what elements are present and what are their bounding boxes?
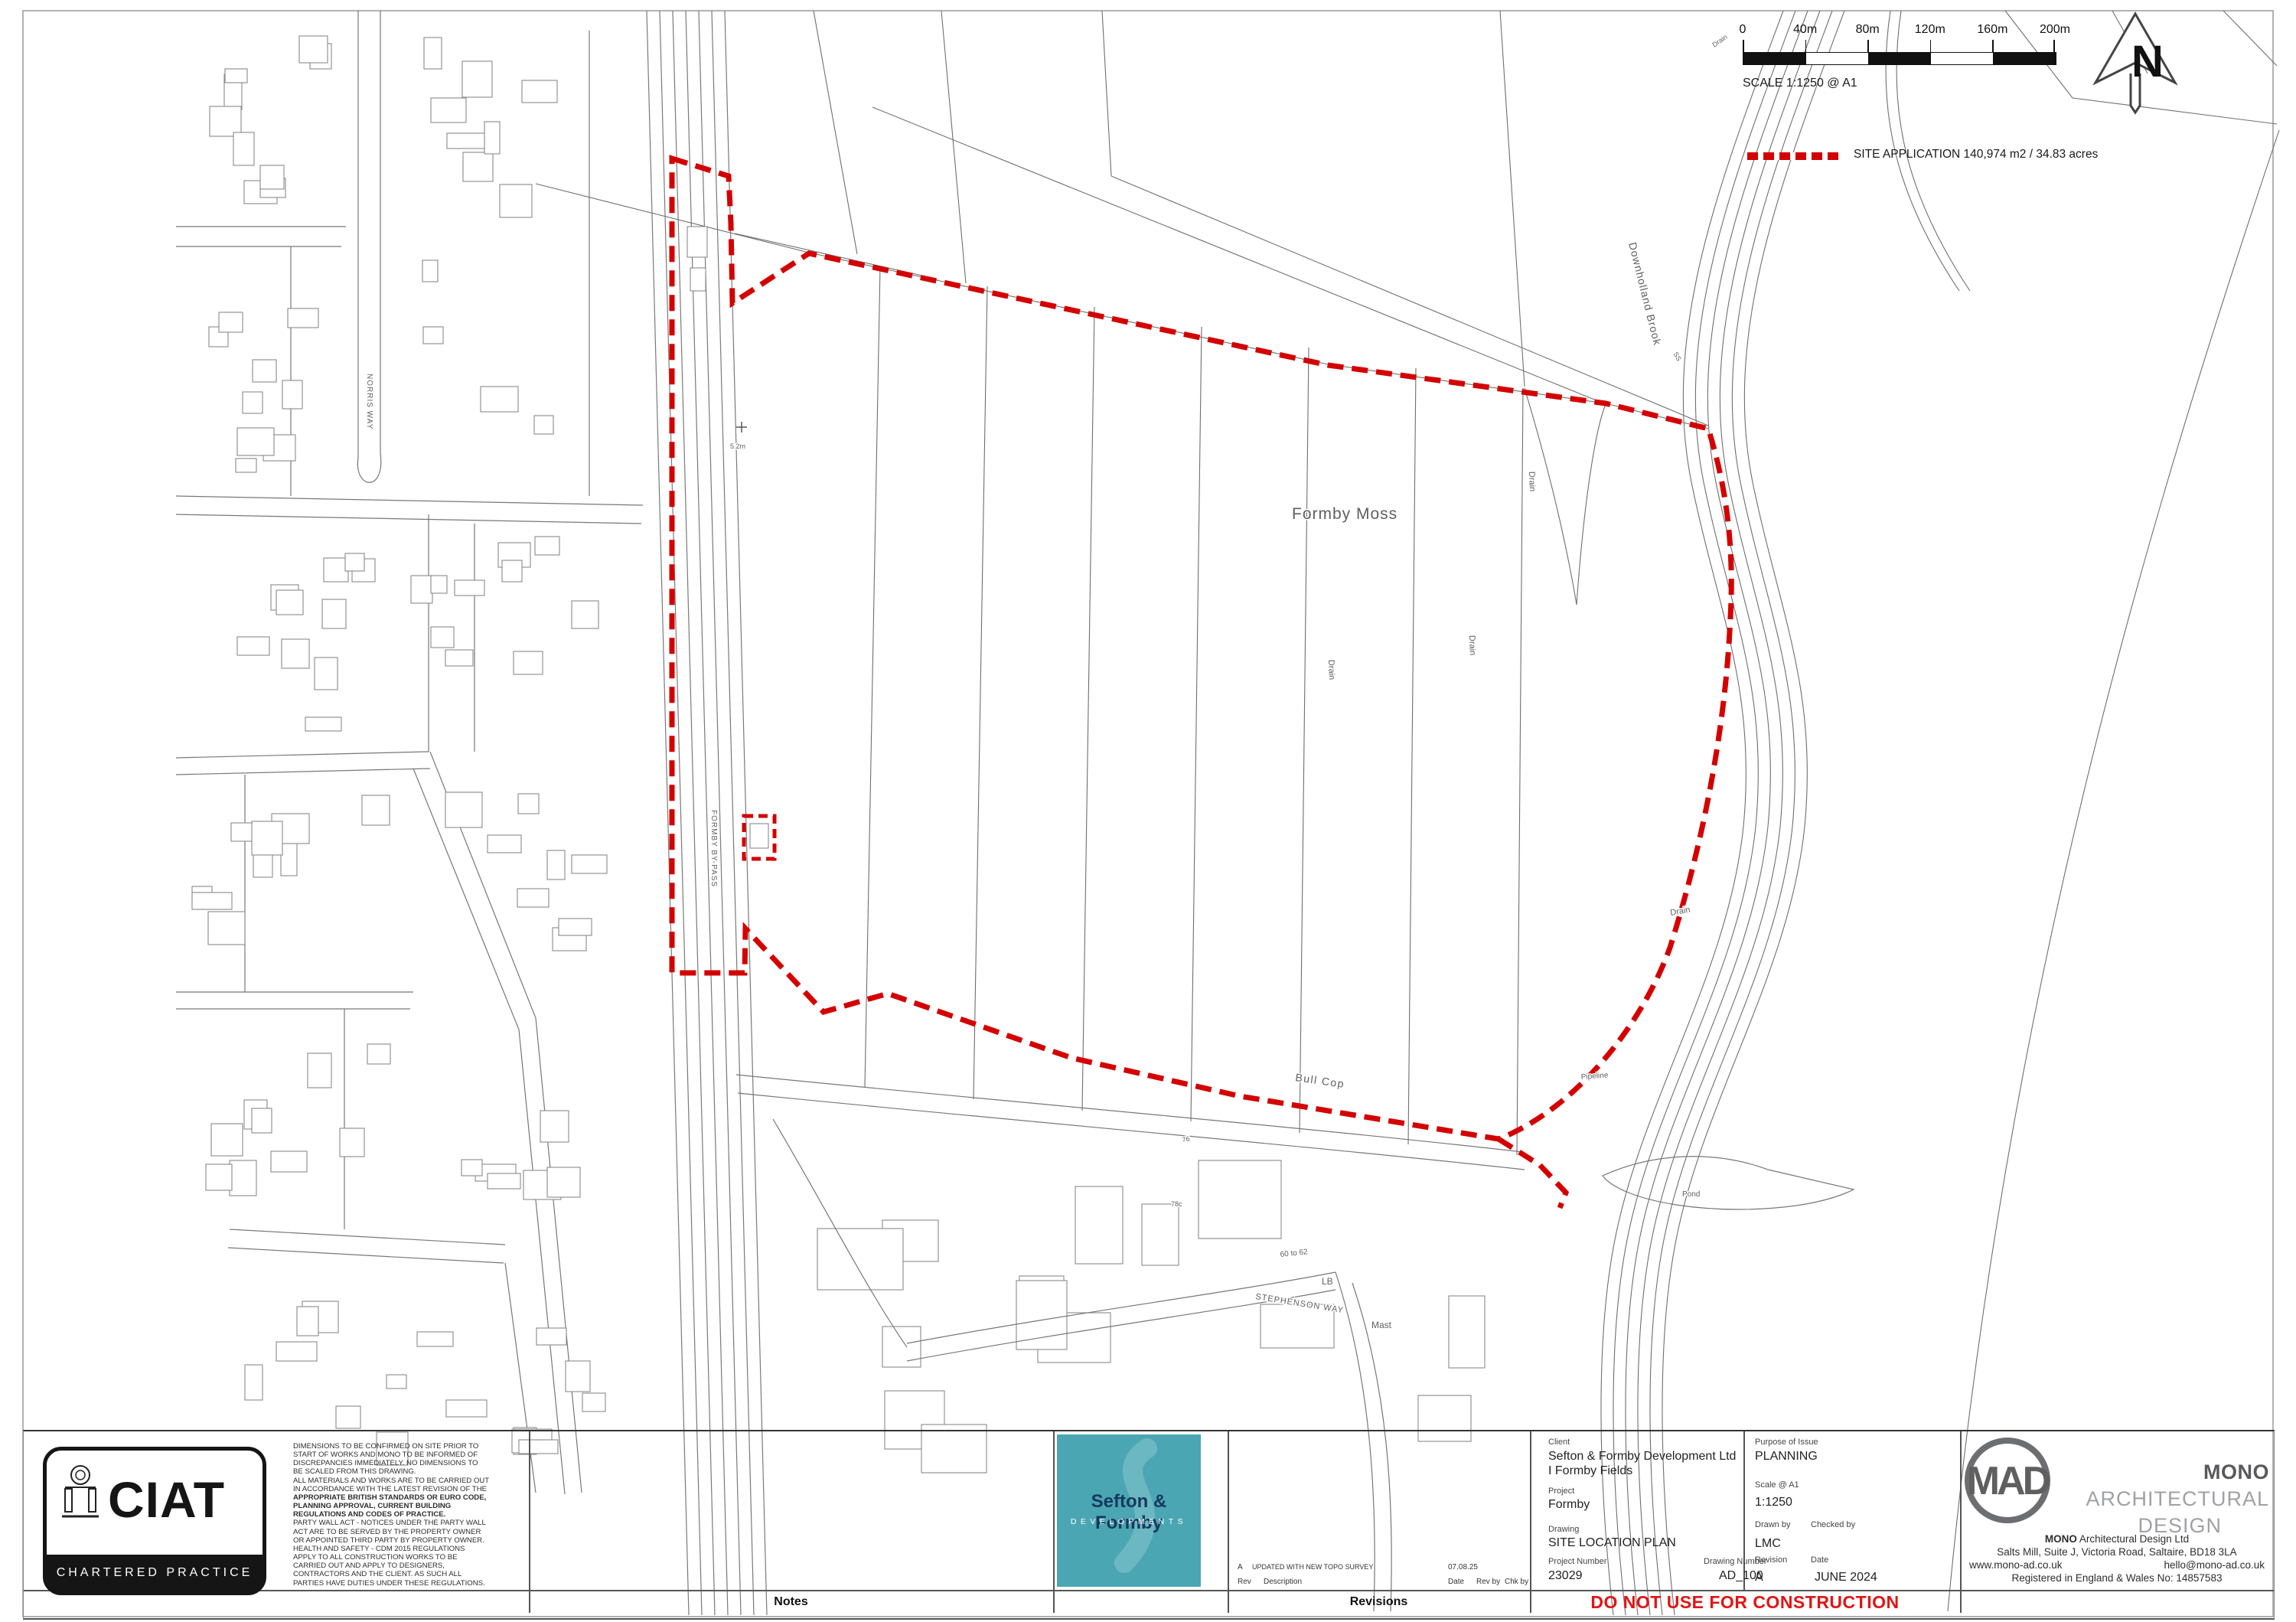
notes-bar-label: Notes bbox=[529, 1591, 1053, 1614]
map-label-downholland-brook: Downholland Brook bbox=[1626, 241, 1664, 347]
building-outline bbox=[276, 590, 303, 615]
date-label: Date bbox=[1811, 1555, 1828, 1565]
note-line: OR APPOINTED THIRD PARTY BY PROPERTY OWN… bbox=[293, 1536, 523, 1545]
building-outline bbox=[297, 1307, 318, 1336]
mad-logo-icon: MAD bbox=[1963, 1436, 2052, 1525]
revision-header-description: Description bbox=[1264, 1578, 1302, 1586]
mono-registration: Registered in England & Wales No: 148575… bbox=[1963, 1571, 2271, 1584]
drawing-label: Drawing bbox=[1548, 1525, 1579, 1534]
revision-header-chk-by: Chk by bbox=[1505, 1578, 1528, 1586]
building-outline bbox=[236, 459, 256, 472]
building-outline bbox=[455, 580, 484, 596]
map-label-drain-1: Drain bbox=[1527, 472, 1537, 492]
building-outline bbox=[192, 893, 232, 909]
sefton-logo-name: Sefton & Formby bbox=[1057, 1491, 1201, 1534]
building-outline bbox=[566, 1361, 590, 1392]
note-line: START OF WORKS AND MONO TO BE INFORMED O… bbox=[293, 1451, 523, 1459]
scale-tick-label: 160m bbox=[1977, 23, 2007, 37]
building-outline bbox=[340, 1128, 364, 1157]
building-outline bbox=[243, 392, 263, 413]
scale-caption: SCALE 1:1250 @ A1 bbox=[1743, 77, 1857, 90]
map-label-norris-way: NORRIS WAY bbox=[365, 374, 373, 429]
building-outline bbox=[882, 1327, 921, 1367]
map-label-76: 76 bbox=[1182, 1135, 1190, 1144]
building-outline bbox=[1075, 1186, 1123, 1264]
map-label-drain-3: Drain bbox=[1467, 635, 1477, 656]
building-outline bbox=[210, 106, 241, 136]
building-outline bbox=[547, 1167, 580, 1197]
scale-value: 1:1250 bbox=[1755, 1496, 1792, 1509]
note-line: REGULATIONS AND CODES OF PRACTICE. bbox=[293, 1510, 523, 1519]
building-outline bbox=[281, 844, 297, 876]
revision-label: Revision bbox=[1755, 1555, 1787, 1565]
revision-value: A bbox=[1755, 1571, 1763, 1584]
note-line: CARRIED OUT AND APPLY TO DESIGNERS, bbox=[293, 1562, 523, 1570]
building-outline bbox=[245, 1365, 263, 1400]
date-value: JUNE 2024 bbox=[1815, 1571, 1877, 1584]
client-label: Client bbox=[1548, 1438, 1570, 1447]
note-line: APPLY TO ALL CONSTRUCTION WORKS TO BE bbox=[293, 1553, 523, 1562]
building-outline bbox=[252, 821, 282, 855]
note-line: ACT ARE TO BE SERVED BY THE PROPERTY OWN… bbox=[293, 1528, 523, 1536]
building-outline bbox=[417, 1332, 453, 1346]
building-outline bbox=[271, 1151, 307, 1172]
west-streets bbox=[176, 11, 643, 1494]
building-outline bbox=[582, 1393, 605, 1411]
drawing-info-panel: Client Sefton & Formby Development Ltd I… bbox=[1530, 1431, 1960, 1590]
note-line: APPROPRIATE BRITISH STANDARDS OR EURO CO… bbox=[293, 1493, 523, 1502]
note-line: IN ACCORDANCE WITH THE LATEST REVISION O… bbox=[293, 1485, 523, 1493]
note-line: PLANNING APPROVAL, CURRENT BUILDING bbox=[293, 1502, 523, 1510]
benchmark-mark bbox=[736, 422, 747, 432]
map-label-benchmark: 5.2m bbox=[730, 442, 745, 450]
building-outline bbox=[488, 835, 521, 853]
building-outline bbox=[559, 919, 592, 935]
mono-brand-light1: ARCHITECTURAL bbox=[2086, 1487, 2269, 1510]
building-outline bbox=[517, 889, 549, 907]
building-outline bbox=[547, 850, 565, 880]
building-outline bbox=[253, 360, 276, 382]
scale-label: Scale @ A1 bbox=[1755, 1480, 1799, 1490]
building-outline bbox=[572, 855, 607, 873]
building-outline bbox=[211, 1124, 243, 1156]
map-label-78c: 78c bbox=[1171, 1200, 1182, 1208]
building-outline bbox=[534, 416, 553, 434]
building-outline bbox=[502, 560, 522, 582]
site-plan-map: N Formby Moss Bull Cop Downholland Brook… bbox=[0, 0, 2296, 1622]
drawing-value: SITE LOCATION PLAN bbox=[1548, 1536, 1676, 1550]
building-outline bbox=[225, 69, 247, 83]
map-label-mast: Mast bbox=[1371, 1320, 1392, 1330]
north-arrow-icon: N bbox=[2095, 14, 2175, 113]
project-number-value: 23029 bbox=[1548, 1569, 1583, 1583]
building-outline bbox=[237, 428, 274, 455]
scale-bar-segments bbox=[1743, 52, 2056, 65]
building-outline bbox=[206, 1164, 232, 1190]
building-outline bbox=[336, 1406, 360, 1428]
building-outline bbox=[422, 260, 438, 282]
building-outline bbox=[282, 380, 302, 409]
mono-company-rest: Architectural Design Ltd bbox=[2077, 1533, 2189, 1545]
north-label: N bbox=[2131, 37, 2164, 86]
map-label-60-to-62: 60 to 62 bbox=[1280, 1248, 1309, 1259]
building-outline bbox=[446, 1400, 487, 1417]
building-outline bbox=[282, 639, 309, 668]
purpose-value: PLANNING bbox=[1755, 1450, 1818, 1464]
map-label-drain-2: Drain bbox=[1326, 660, 1336, 680]
building-outline bbox=[445, 650, 473, 666]
drawn-by-label: Drawn by bbox=[1755, 1520, 1790, 1529]
scale-tick-label: 200m bbox=[2040, 23, 2070, 37]
revision-header-rev: Rev bbox=[1238, 1578, 1251, 1586]
building-outline bbox=[362, 795, 390, 825]
site-application-legend-label: SITE APPLICATION 140,974 m2 / 34.83 acre… bbox=[1854, 148, 2098, 162]
map-label-pond: Pond bbox=[1682, 1190, 1700, 1199]
building-outline bbox=[461, 1160, 482, 1176]
ciat-subtitle: CHARTERED PRACTICE bbox=[47, 1555, 263, 1591]
building-outline bbox=[367, 1044, 390, 1064]
scale-tick-label: 0 bbox=[1740, 23, 1746, 37]
note-line: ALL MATERIALS AND WORKS ARE TO BE CARRIE… bbox=[293, 1477, 523, 1485]
building-outline bbox=[536, 1328, 566, 1345]
building-outline bbox=[500, 184, 532, 217]
scale-tick-label: 120m bbox=[1915, 23, 1945, 37]
building-outline bbox=[518, 794, 539, 814]
sefton-logo-subtitle: DEVELOPMENTS bbox=[1057, 1517, 1201, 1526]
mono-brand: MONO ARCHITECTURAL DESIGN bbox=[2050, 1460, 2269, 1537]
mono-address-block: MONO Architectural Design Ltd Salts Mill… bbox=[1963, 1532, 2271, 1584]
mad-logo-letters: MAD bbox=[1967, 1459, 2050, 1503]
project-number-label: Project Number bbox=[1548, 1557, 1606, 1566]
mono-company-bold: MONO bbox=[2045, 1533, 2077, 1545]
revision-header-date: Date bbox=[1448, 1578, 1464, 1586]
revisions-section: A UPDATED WITH NEW TOPO SURVEY 07.08.25 … bbox=[1228, 1431, 1530, 1590]
mono-address: Salts Mill, Suite J, Victoria Road, Salt… bbox=[1963, 1545, 2271, 1558]
map-label-lb: LB bbox=[1322, 1276, 1333, 1287]
site-application-boundary bbox=[672, 158, 1731, 1208]
building-outline bbox=[514, 651, 543, 674]
building-outline bbox=[345, 553, 364, 571]
building-outline bbox=[540, 1111, 569, 1142]
map-label-pipeline: Pipeline bbox=[1580, 1072, 1609, 1082]
building-outline bbox=[324, 558, 348, 582]
map-label-drain-4: Drain bbox=[1669, 906, 1691, 918]
site-location-plan-sheet: N Formby Moss Bull Cop Downholland Brook… bbox=[0, 0, 2296, 1622]
project-value: Formby bbox=[1548, 1498, 1590, 1512]
revision-rev: A bbox=[1238, 1563, 1243, 1571]
ciat-chartered-practice-logo: CIAT CHARTERED PRACTICE bbox=[43, 1447, 266, 1595]
building-outline bbox=[1016, 1281, 1067, 1349]
map-label-ss: SS bbox=[1671, 351, 1683, 362]
building-outline bbox=[817, 1229, 903, 1290]
ciat-crest-icon bbox=[59, 1463, 102, 1522]
building-outline bbox=[208, 912, 245, 945]
revisions-bar-label: Revisions bbox=[1228, 1591, 1530, 1614]
map-labels: Formby Moss Bull Cop Downholland Brook D… bbox=[365, 33, 1729, 1330]
revision-description: UPDATED WITH NEW TOPO SURVEY bbox=[1252, 1563, 1373, 1571]
map-label-bull-cop: Bull Cop bbox=[1295, 1071, 1346, 1090]
building-outline bbox=[431, 627, 454, 648]
building-outline bbox=[252, 1108, 272, 1133]
building-outline bbox=[522, 80, 557, 103]
mono-website: www.mono-ad.co.uk bbox=[1969, 1558, 2063, 1571]
mono-brand-bold: MONO bbox=[2203, 1460, 2269, 1483]
sefton-formby-developments-logo: Sefton & Formby DEVELOPMENTS bbox=[1057, 1434, 1201, 1587]
general-notes: DIMENSIONS TO BE CONFIRMED ON SITE PRIOR… bbox=[293, 1442, 523, 1588]
site-boundary-legend-swatch bbox=[1747, 152, 1844, 160]
building-outline bbox=[423, 327, 443, 344]
revision-date: 07.08.25 bbox=[1448, 1563, 1478, 1571]
building-outline bbox=[276, 1342, 317, 1361]
building-outline bbox=[462, 61, 492, 97]
building-outline bbox=[488, 1173, 520, 1189]
building-outline bbox=[237, 637, 269, 655]
building-outline bbox=[481, 387, 518, 412]
revision-header-rev-by: Rev by bbox=[1476, 1578, 1500, 1586]
map-label-formby-moss: Formby Moss bbox=[1292, 505, 1397, 523]
do-not-use-warning: DO NOT USE FOR CONSTRUCTION bbox=[1530, 1591, 1960, 1614]
drawn-by-value: LMC bbox=[1755, 1537, 1781, 1551]
map-label-drain-5: Drain bbox=[1711, 33, 1728, 49]
scale-tick-label: 40m bbox=[1793, 23, 1817, 37]
building-outline bbox=[230, 1160, 256, 1196]
scale-tick-label: 80m bbox=[1856, 23, 1880, 37]
note-line: DISCREPANCIES IMMEDIATELY. NO DIMENSIONS… bbox=[293, 1459, 523, 1467]
building-outline bbox=[463, 152, 493, 181]
building-outline bbox=[219, 312, 243, 332]
building-outline bbox=[424, 38, 442, 69]
building-outline bbox=[1142, 1204, 1179, 1265]
note-line: DIMENSIONS TO BE CONFIRMED ON SITE PRIOR… bbox=[293, 1442, 523, 1451]
title-block: CIAT CHARTERED PRACTICE DIMENSIONS TO BE… bbox=[23, 1430, 2275, 1620]
building-outline bbox=[233, 132, 254, 165]
building-outline bbox=[299, 36, 328, 63]
building-outline bbox=[447, 133, 484, 148]
building-outline bbox=[572, 601, 598, 628]
checked-by-label: Checked by bbox=[1811, 1520, 1855, 1529]
building-outline bbox=[431, 576, 447, 593]
note-line: PARTIES HAVE DUTIES UNDER THESE REGULATI… bbox=[293, 1579, 523, 1588]
building-outline bbox=[322, 599, 346, 628]
building-outline bbox=[1199, 1160, 1281, 1239]
note-line: CONTRACTORS AND THE CLIENT. AS SUCH ALL bbox=[293, 1570, 523, 1578]
mono-architectural-design-panel: MAD MONO ARCHITECTURAL DESIGN MONO Archi… bbox=[1960, 1431, 2274, 1590]
note-line: PARTY WALL ACT - NOTICES UNDER THE PARTY… bbox=[293, 1519, 523, 1527]
building-outline bbox=[288, 308, 318, 328]
client-value: Sefton & Formby Development Ltd I Formby… bbox=[1548, 1449, 1740, 1478]
project-label: Project bbox=[1548, 1487, 1574, 1496]
building-outline bbox=[253, 852, 272, 877]
mono-email: hello@mono-ad.co.uk bbox=[2164, 1558, 2265, 1571]
building-outline bbox=[315, 658, 338, 690]
note-line: BE SCALED FROM THIS DRAWING. bbox=[293, 1467, 523, 1476]
ciat-acronym: CIAT bbox=[108, 1470, 225, 1529]
building-outline bbox=[484, 122, 500, 154]
building-outline bbox=[431, 98, 466, 122]
scale-bar: 0 40m 80m 120m 160m 200m bbox=[1743, 23, 2055, 69]
map-label-formby-bypass: FORMBY BY-PASS bbox=[709, 810, 718, 887]
building-outline bbox=[535, 537, 559, 555]
note-line: HEALTH AND SAFETY - CDM 2015 REGULATIONS bbox=[293, 1545, 523, 1553]
building-outline bbox=[411, 576, 432, 603]
purpose-label: Purpose of Issue bbox=[1755, 1438, 1818, 1447]
building-outline bbox=[308, 1053, 331, 1088]
building-outline bbox=[305, 717, 341, 731]
building-outline bbox=[260, 165, 284, 189]
building-outline bbox=[445, 792, 482, 827]
building-outline bbox=[386, 1375, 406, 1389]
building-outline bbox=[1449, 1296, 1485, 1368]
